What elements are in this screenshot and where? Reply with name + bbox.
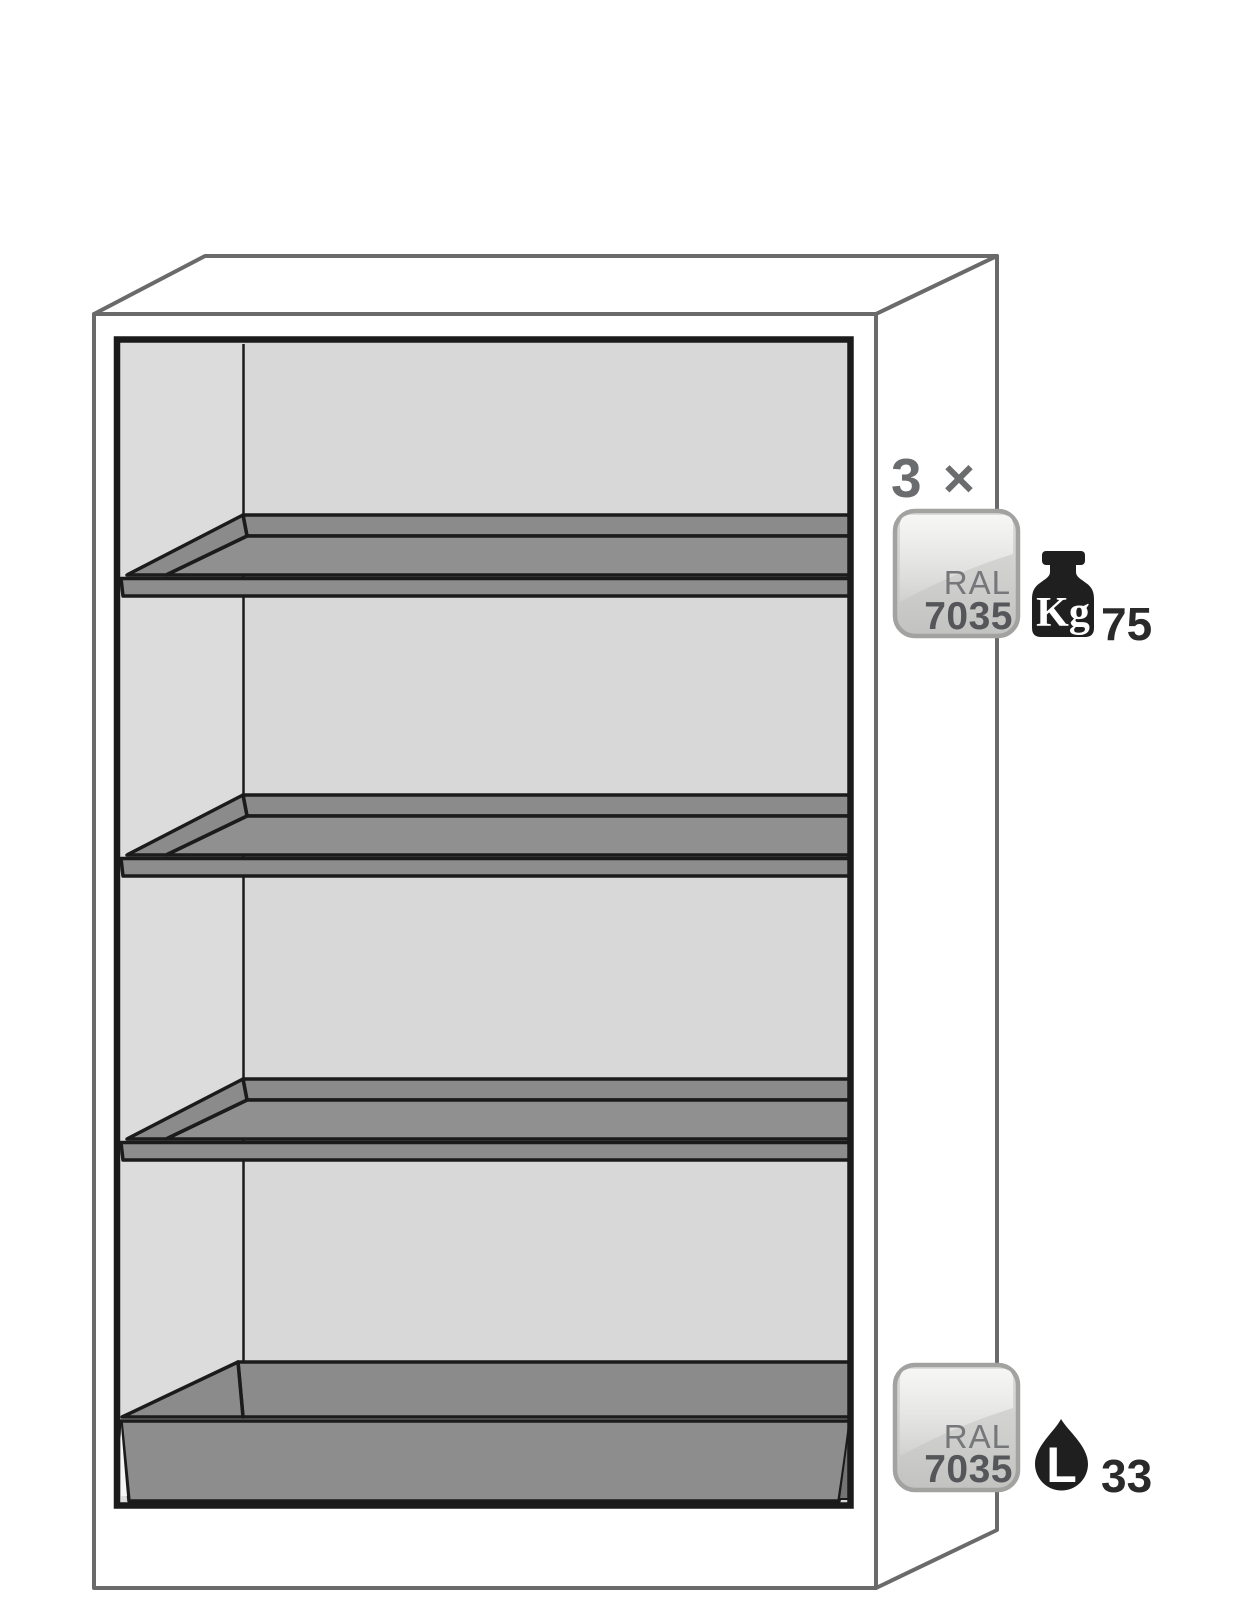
shelf-load-annotation: Kg 75 [1032, 551, 1152, 650]
page: 3 × RAL 7035 Kg 75 RAL 7035 L 33 [0, 0, 1241, 1624]
liquid-drop-icon: L [1035, 1419, 1088, 1493]
sump-front-face [121, 1421, 851, 1501]
shelf-load-value: 75 [1101, 598, 1152, 650]
shelf-2 [121, 795, 851, 876]
interior-left-wall [120, 342, 243, 1504]
badge-bottom-line2: 7035 [924, 1448, 1013, 1491]
safety-cabinet-diagram: 3 × RAL 7035 Kg 75 RAL 7035 L 33 [0, 0, 1241, 1624]
weight-kg-icon: Kg [1032, 551, 1094, 637]
shelf-3 [121, 1079, 851, 1160]
sump-inner [238, 1362, 850, 1417]
drop-unit-label: L [1046, 1437, 1077, 1493]
shelf-count-label: 3 × [891, 447, 978, 509]
shelf-1 [121, 515, 851, 596]
badge-top-line2: 7035 [924, 595, 1013, 638]
ral-7035-badge-bottom: RAL 7035 [895, 1365, 1018, 1491]
cabinet-interior [117, 340, 851, 1506]
sump-volume-annotation: L 33 [1035, 1419, 1152, 1502]
sump-volume-value: 33 [1101, 1450, 1152, 1502]
sump-tray [121, 1362, 851, 1501]
ral-7035-badge-top: RAL 7035 [895, 511, 1018, 638]
weight-unit-label: Kg [1036, 590, 1090, 636]
cabinet-top-face [94, 256, 997, 314]
